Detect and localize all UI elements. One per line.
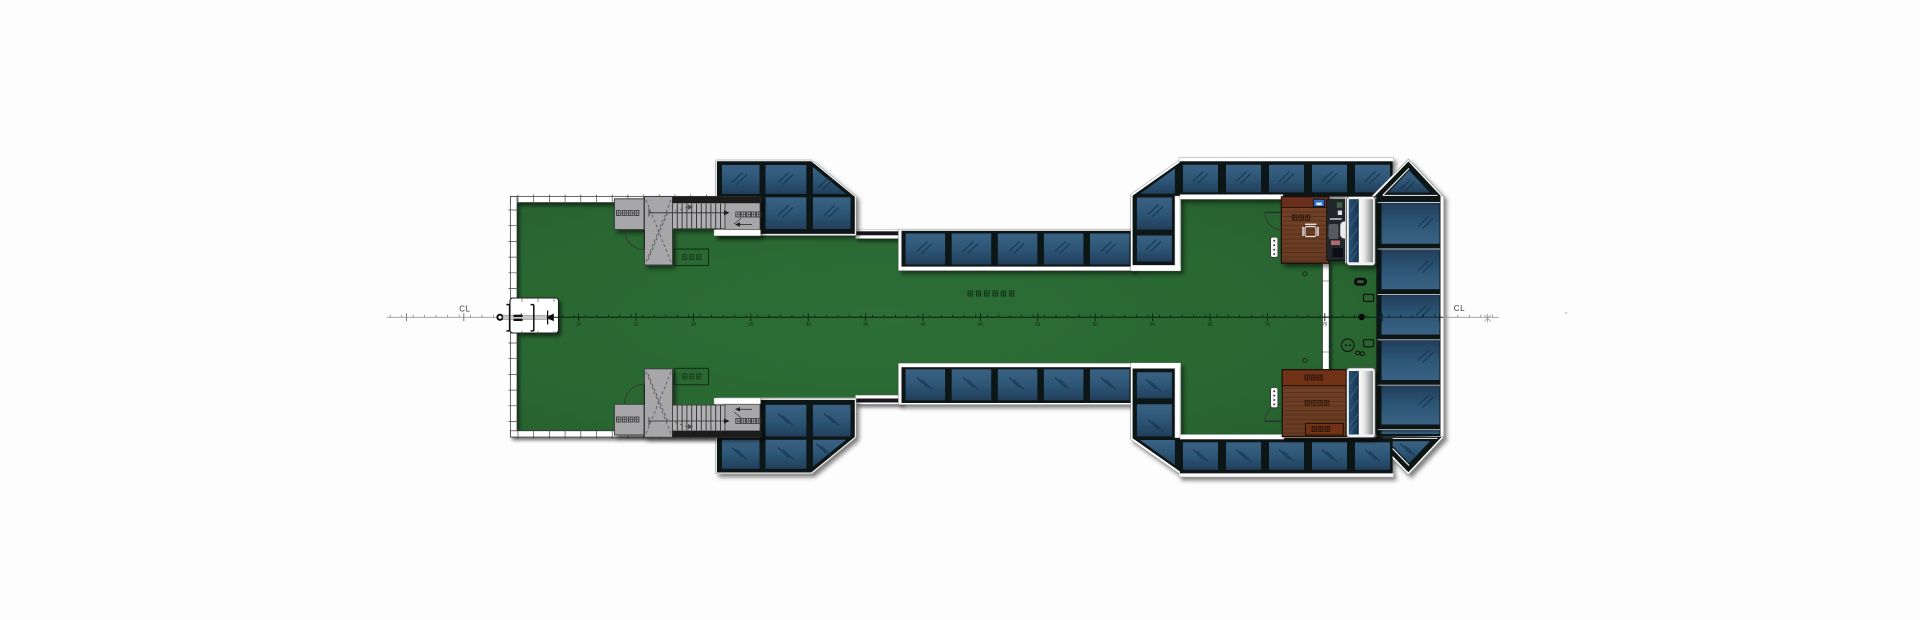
- svg-text:75: 75: [1322, 322, 1328, 327]
- svg-text:35: 35: [863, 322, 869, 327]
- svg-text:CL: CL: [1454, 304, 1465, 313]
- svg-text:CL: CL: [459, 305, 470, 314]
- svg-text:25: 25: [748, 322, 754, 327]
- svg-text:70: 70: [1265, 322, 1271, 327]
- svg-text:60: 60: [1150, 322, 1156, 327]
- svg-text:40: 40: [920, 322, 926, 327]
- svg-text:45: 45: [978, 322, 984, 327]
- svg-text:55: 55: [1093, 322, 1099, 327]
- svg-text:10: 10: [576, 322, 582, 327]
- svg-text:50: 50: [1035, 322, 1041, 327]
- svg-text:20: 20: [691, 322, 697, 327]
- svg-text:15: 15: [633, 322, 639, 327]
- svg-text:30: 30: [806, 322, 812, 327]
- svg-text:65: 65: [1207, 322, 1213, 327]
